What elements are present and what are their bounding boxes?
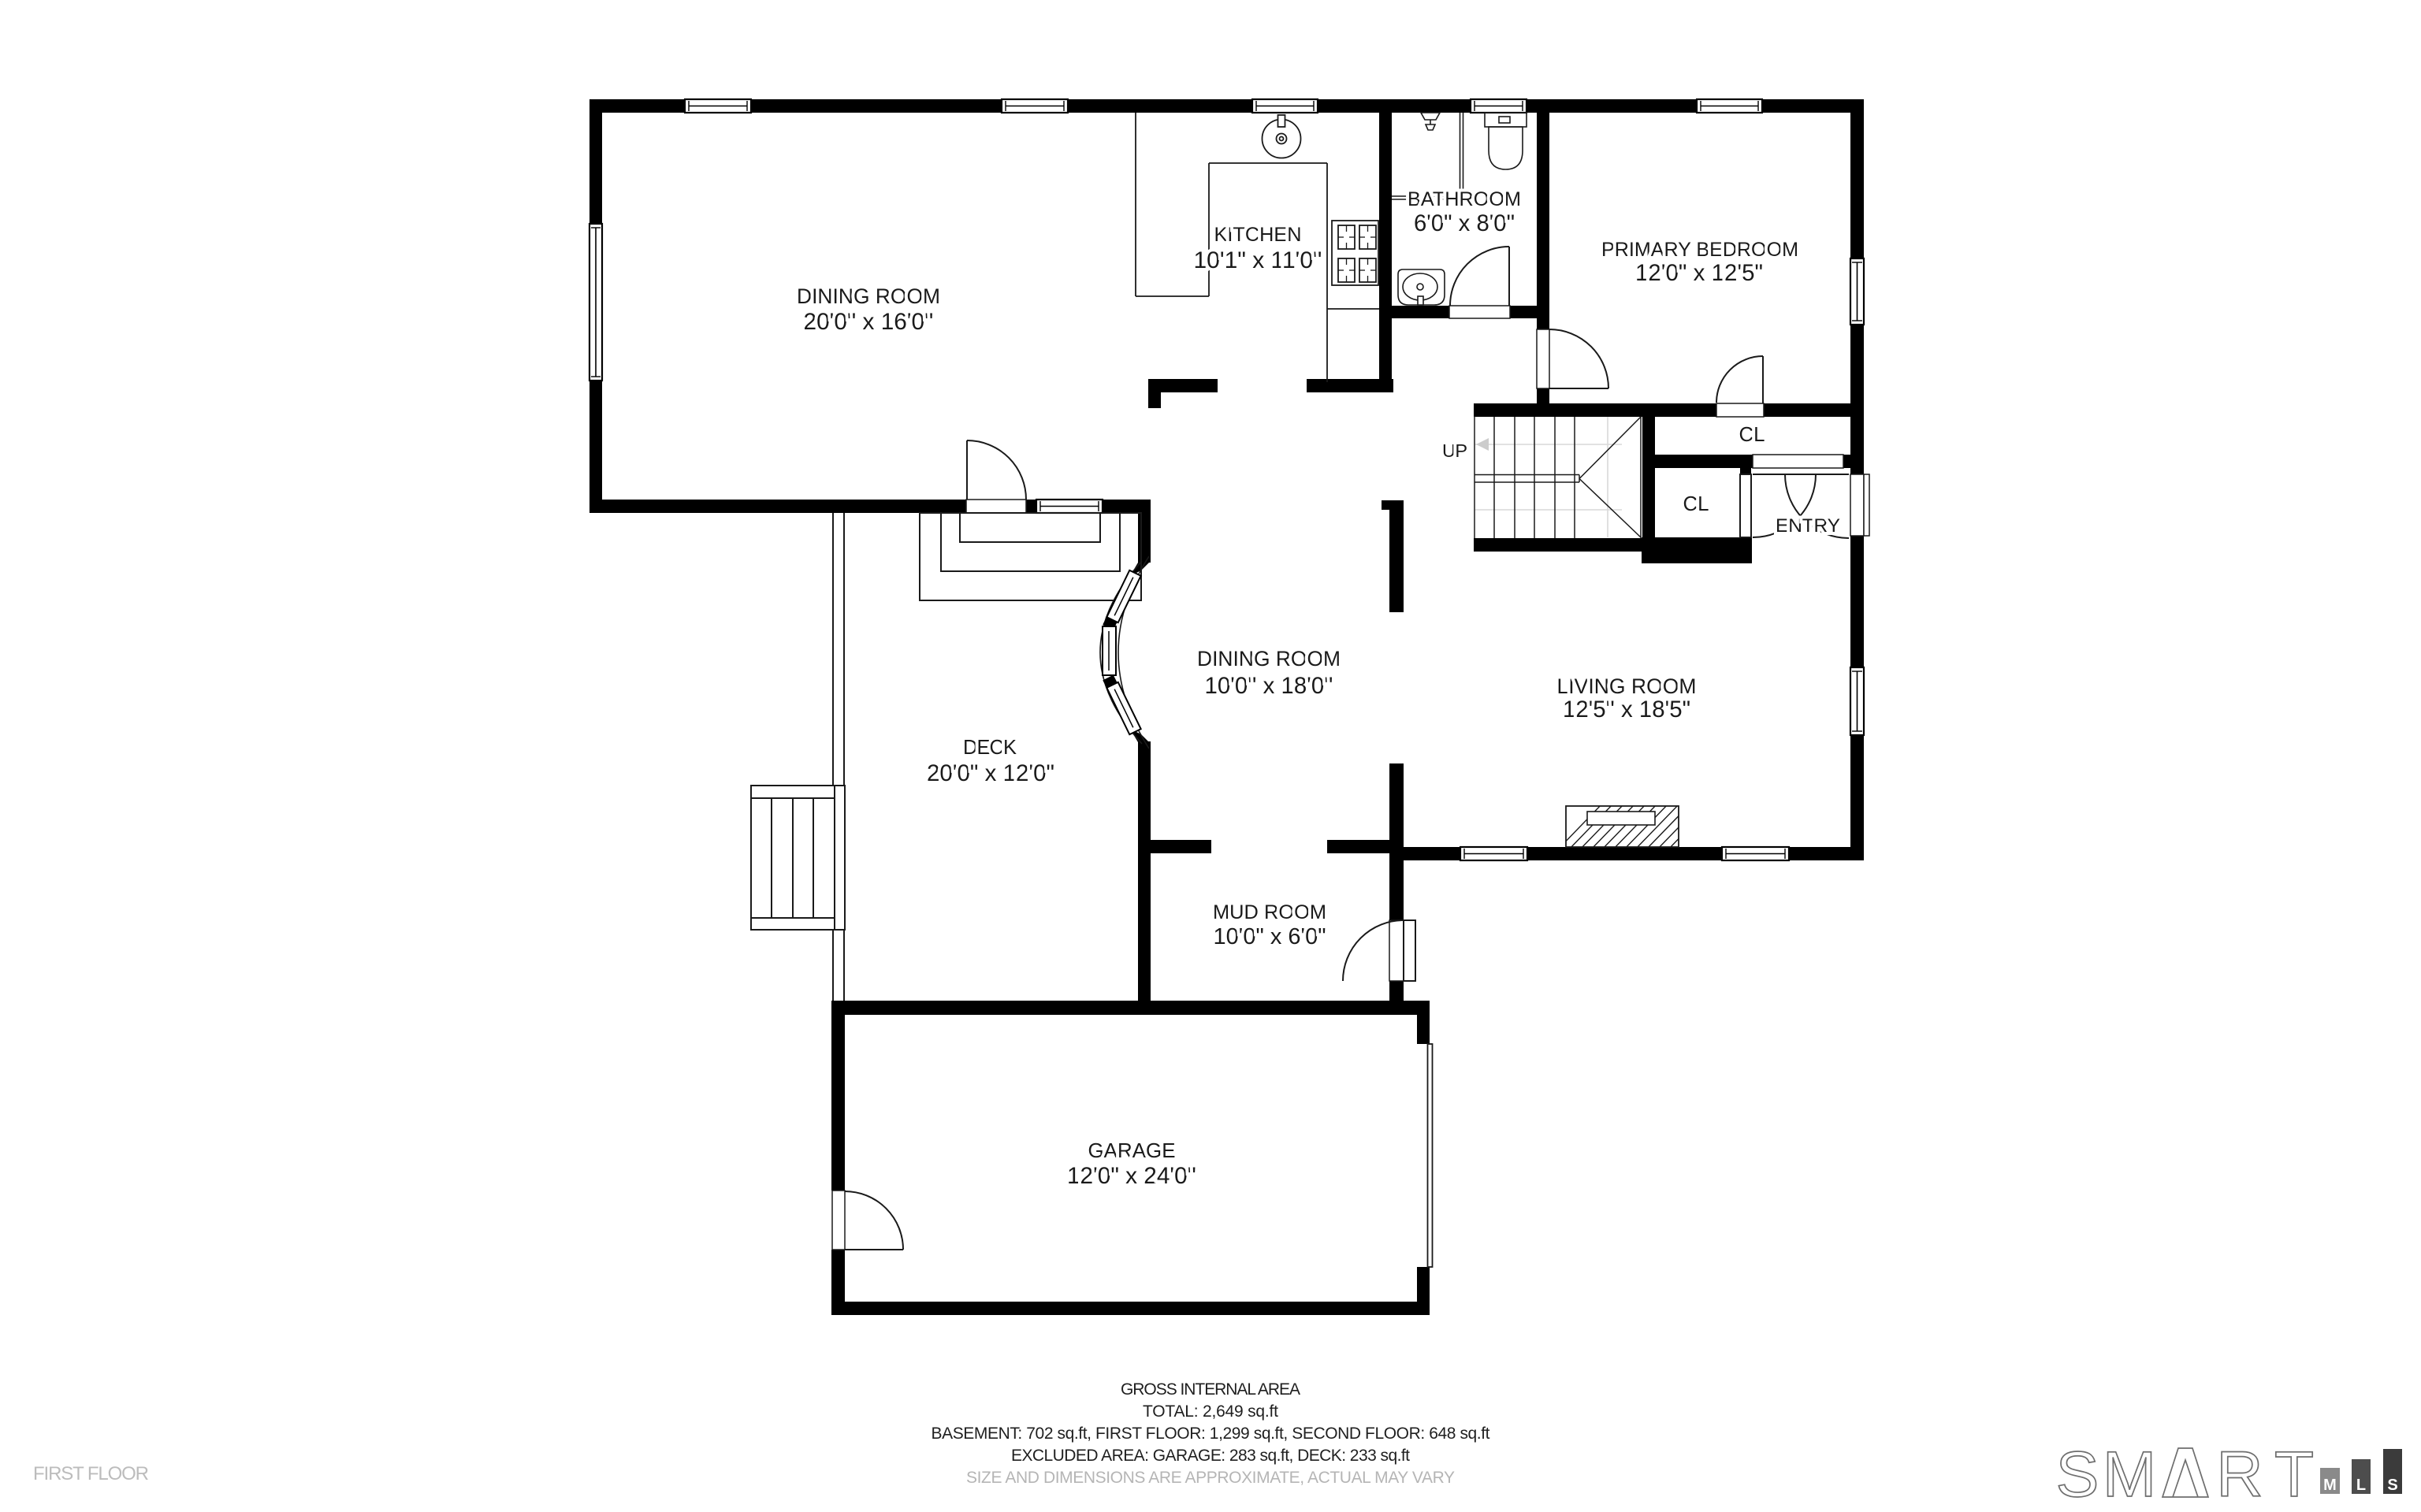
- svg-text:GARAGE: GARAGE: [1088, 1140, 1176, 1162]
- svg-text:DINING ROOM: DINING ROOM: [1197, 647, 1341, 671]
- svg-text:M: M: [2323, 1477, 2337, 1494]
- svg-text:TOTAL: 2,649 sq.ft: TOTAL: 2,649 sq.ft: [1143, 1402, 1278, 1421]
- svg-text:ENTRY: ENTRY: [1776, 515, 1840, 537]
- svg-text:10'1" x 11'0'': 10'1" x 11'0'': [1194, 247, 1322, 273]
- svg-text:UP: UP: [1442, 440, 1467, 461]
- svg-text:EXCLUDED AREA: GARAGE: 283 sq.: EXCLUDED AREA: GARAGE: 283 sq.ft, DECK: …: [1011, 1447, 1410, 1465]
- svg-text:CL: CL: [1683, 493, 1709, 515]
- svg-text:GROSS INTERNAL AREA: GROSS INTERNAL AREA: [1121, 1380, 1300, 1399]
- svg-text:S: S: [2056, 1439, 2099, 1510]
- svg-text:SIZE AND DIMENSIONS ARE APPROX: SIZE AND DIMENSIONS ARE APPROXIMATE, ACT…: [966, 1469, 1455, 1487]
- svg-text:10'0'' x 18'0'': 10'0'' x 18'0'': [1205, 673, 1333, 699]
- svg-text:BATHROOM: BATHROOM: [1408, 188, 1521, 210]
- svg-text:R: R: [2216, 1439, 2263, 1510]
- svg-text:S: S: [2387, 1477, 2397, 1494]
- svg-text:LIVING ROOM: LIVING ROOM: [1557, 674, 1697, 698]
- svg-text:20'0" x 12'0": 20'0" x 12'0": [927, 760, 1054, 786]
- svg-text:M: M: [2103, 1439, 2156, 1510]
- svg-text:DECK: DECK: [963, 737, 1017, 759]
- svg-text:BASEMENT: 702 sq.ft, FIRST FLO: BASEMENT: 702 sq.ft, FIRST FLOOR: 1,299 …: [932, 1425, 1490, 1443]
- svg-text:10'0" x 6'0": 10'0" x 6'0": [1214, 924, 1326, 949]
- svg-text:T: T: [2274, 1439, 2314, 1510]
- svg-text:L: L: [2356, 1477, 2366, 1494]
- svg-text:CL: CL: [1739, 424, 1765, 446]
- svg-text:DINING ROOM: DINING ROOM: [797, 284, 940, 308]
- svg-text:6'0" x 8'0": 6'0" x 8'0": [1414, 210, 1515, 236]
- svg-text:20'0'' x 16'0'': 20'0'' x 16'0'': [804, 309, 934, 335]
- svg-text:FIRST FLOOR: FIRST FLOOR: [33, 1463, 149, 1484]
- svg-text:MUD ROOM: MUD ROOM: [1213, 901, 1326, 923]
- svg-text:KITCHEN: KITCHEN: [1214, 224, 1302, 246]
- svg-text:12'5'' x 18'5": 12'5'' x 18'5": [1563, 697, 1690, 723]
- svg-text:PRIMARY BEDROOM: PRIMARY BEDROOM: [1601, 239, 1798, 261]
- svg-text:12'0" x 12'5": 12'0" x 12'5": [1635, 260, 1763, 286]
- svg-text:12'0" x 24'0'': 12'0" x 24'0'': [1067, 1163, 1196, 1189]
